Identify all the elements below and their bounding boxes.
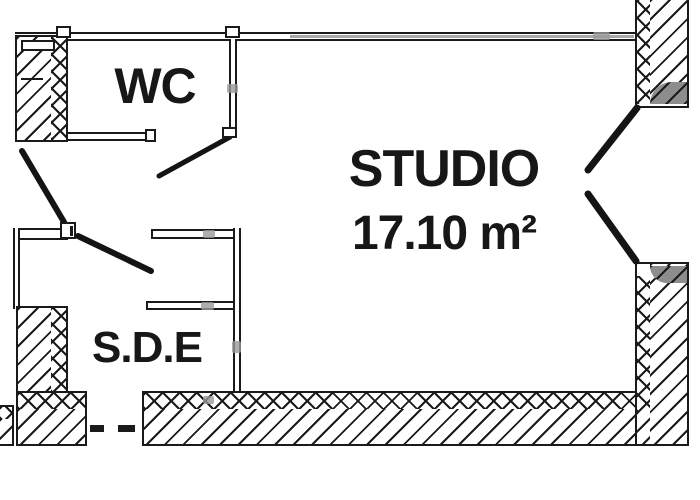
- scan-artifact: [227, 84, 238, 93]
- top-wall-post-left: [56, 26, 71, 38]
- door-hinge-box: [60, 222, 76, 239]
- scan-artifact: [203, 230, 215, 238]
- studio-label: STUDIO: [322, 138, 566, 200]
- scan-artifact: [203, 396, 214, 404]
- window-leaf-bottom: [588, 194, 636, 261]
- scan-artifact: [593, 32, 610, 40]
- scan-artifact: [232, 341, 241, 353]
- wc-label: WC: [100, 56, 210, 116]
- studio-area-label: 17.10 m²: [312, 204, 576, 264]
- sde-label: S.D.E: [74, 320, 220, 376]
- sde-door-leaf: [78, 236, 151, 271]
- floor-plan: WC STUDIO 17.10 m² S.D.E: [0, 0, 700, 500]
- wc-wall-endcap: [145, 129, 156, 142]
- top-wall-post-mid: [225, 26, 240, 38]
- wc-door-leaf: [159, 137, 230, 176]
- door-hinge-mark: [70, 226, 73, 236]
- window-leaf-top: [588, 108, 637, 170]
- scan-artifact: [201, 302, 214, 310]
- entry-door-leaf: [22, 151, 64, 222]
- wc-partition-foot: [222, 127, 237, 138]
